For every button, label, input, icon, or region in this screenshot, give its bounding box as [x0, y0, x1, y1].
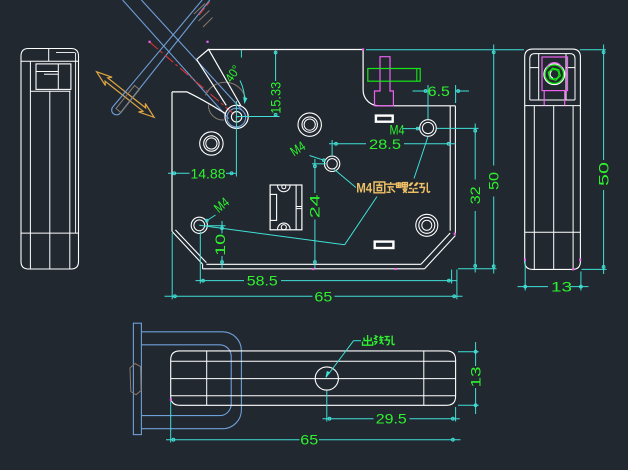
svg-text:14.88: 14.88 [191, 166, 226, 181]
svg-text:65: 65 [300, 433, 318, 448]
svg-text:15.33: 15.33 [268, 82, 283, 114]
svg-text:29.5: 29.5 [376, 412, 407, 427]
svg-text:13: 13 [468, 367, 483, 388]
svg-text:13: 13 [551, 280, 572, 295]
svg-text:M4: M4 [390, 123, 405, 138]
svg-text:28.5: 28.5 [369, 137, 401, 152]
svg-text:65: 65 [314, 289, 332, 304]
svg-text:6.5: 6.5 [428, 84, 450, 99]
svg-text:50: 50 [596, 162, 611, 186]
svg-text:M4: M4 [356, 181, 372, 196]
svg-text:58.5: 58.5 [247, 273, 278, 288]
svg-text:10: 10 [213, 234, 228, 256]
svg-text:50: 50 [486, 172, 501, 190]
svg-text:32: 32 [468, 186, 483, 204]
svg-text:24: 24 [308, 194, 323, 219]
